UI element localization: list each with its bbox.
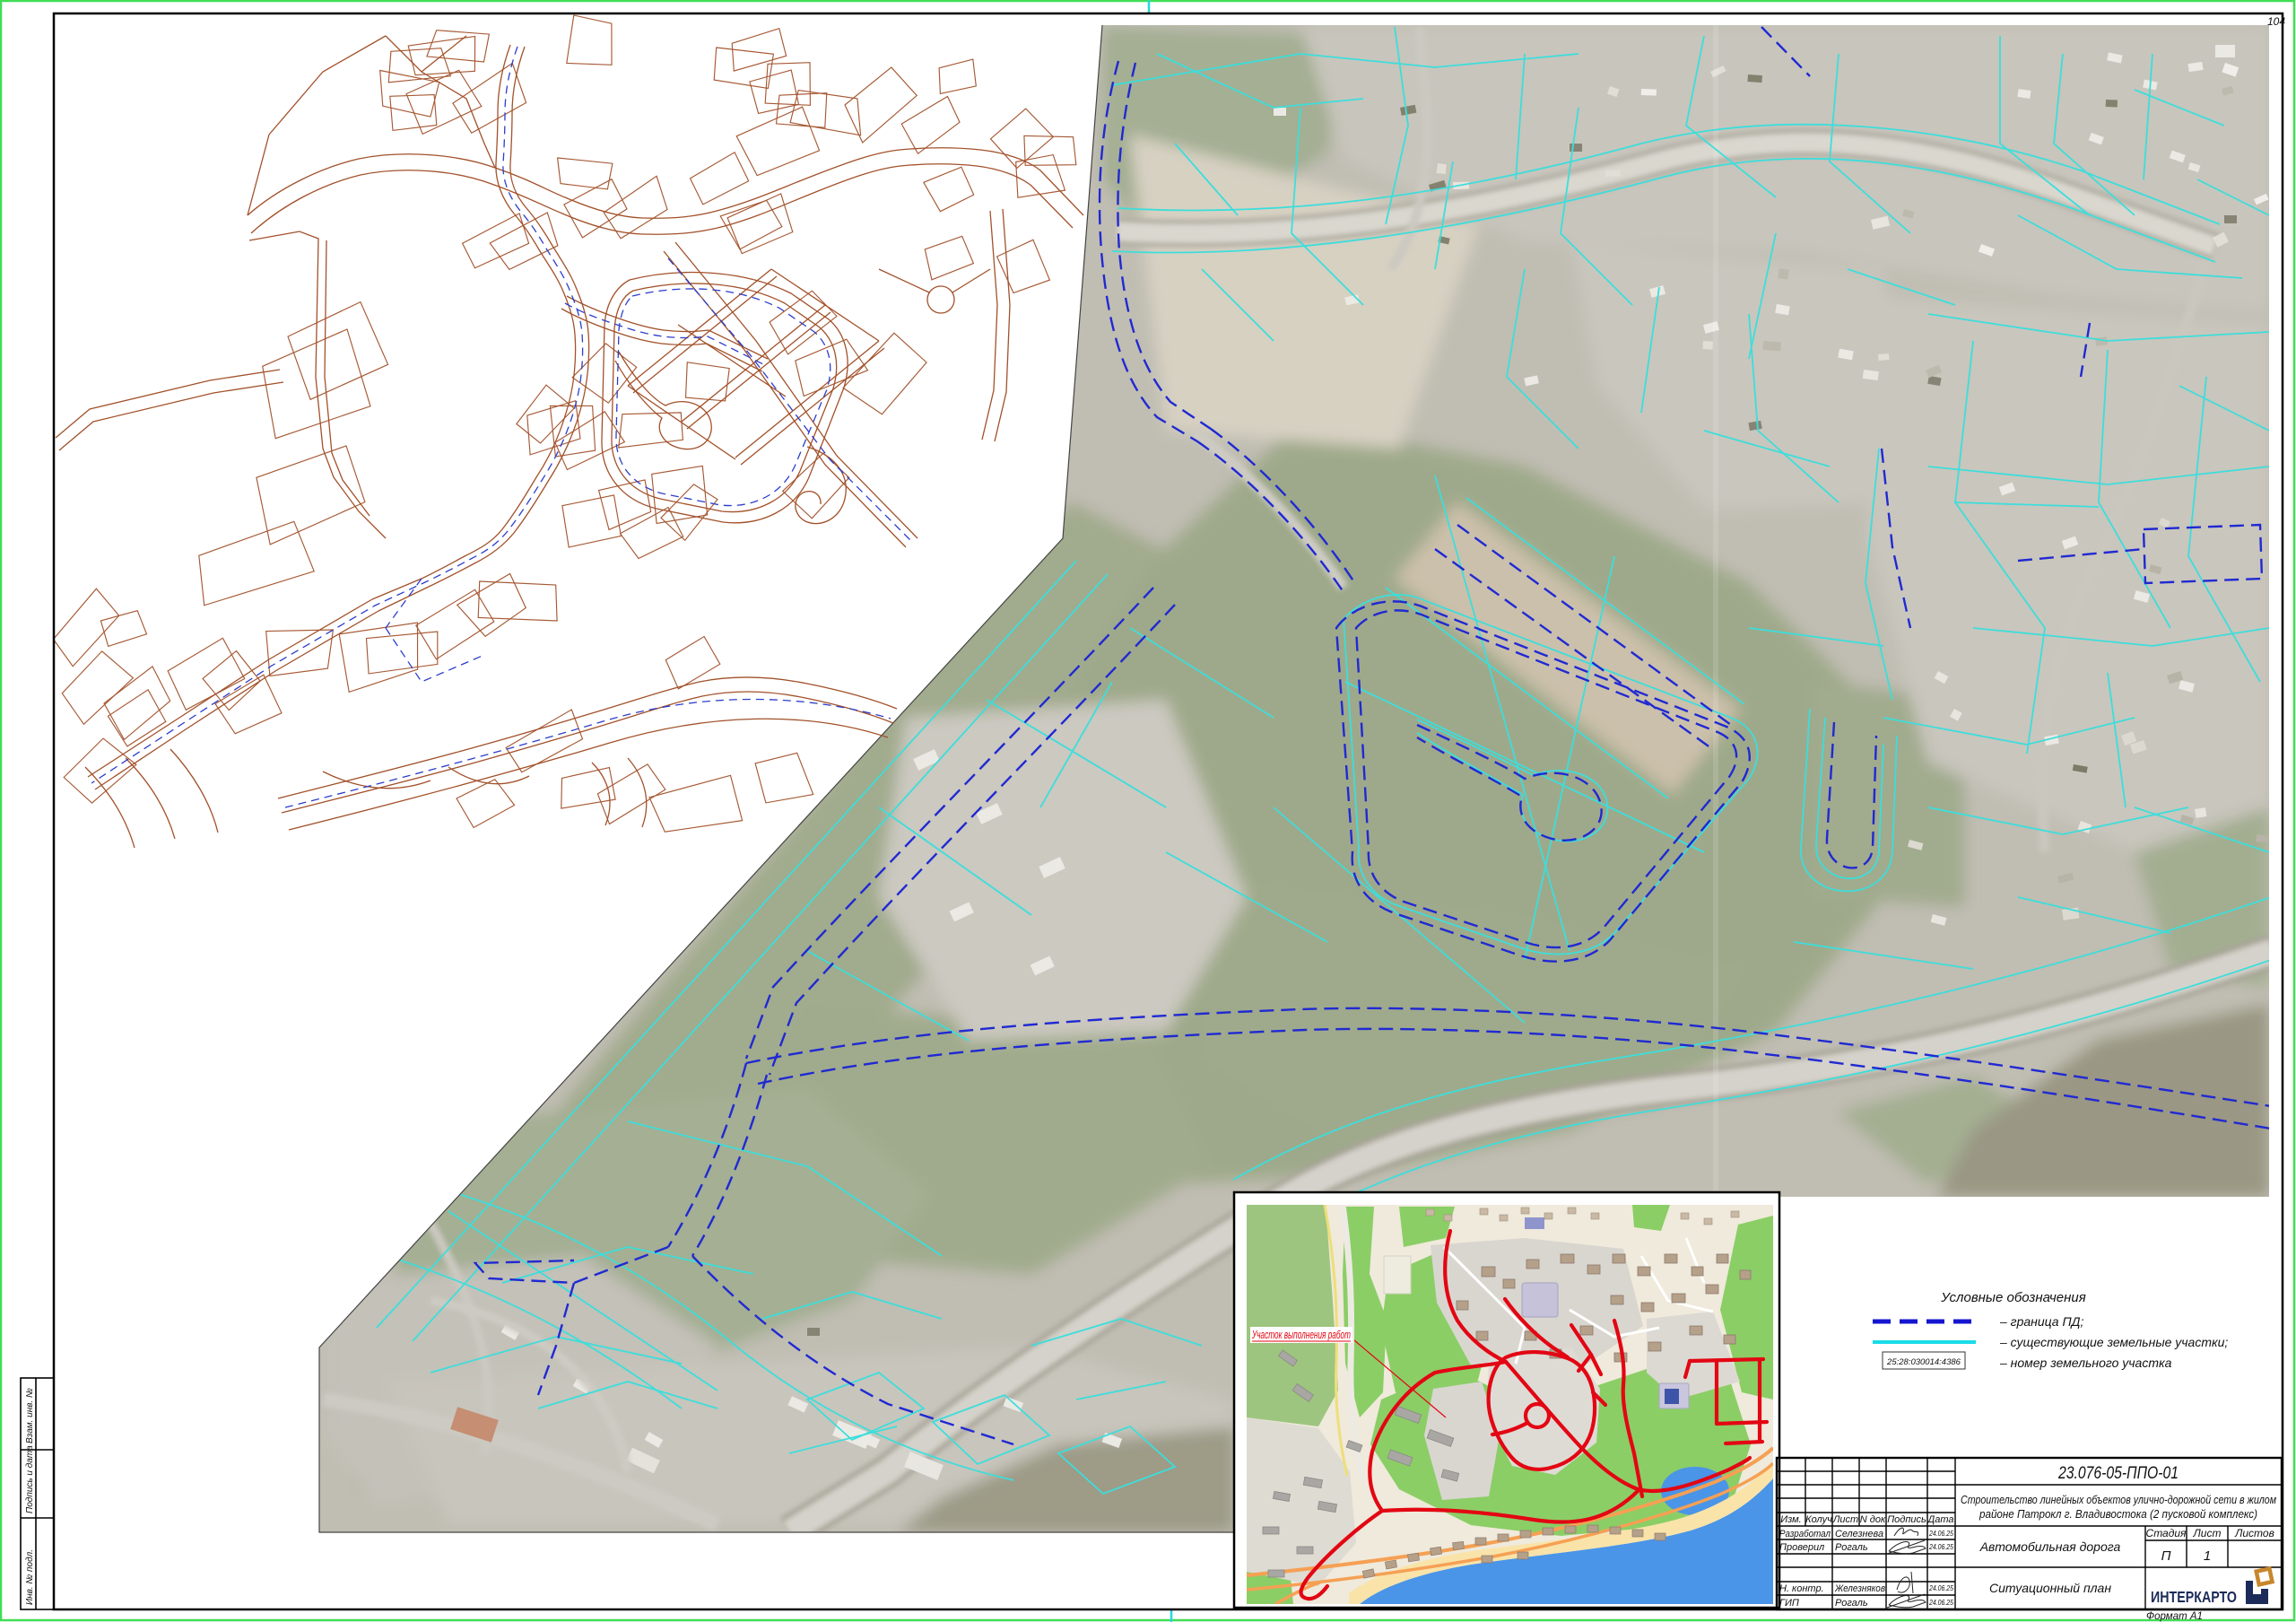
svg-text:ГИП: ГИП <box>1779 1598 1799 1609</box>
svg-text:П: П <box>2161 1548 2171 1564</box>
svg-text:Колуч: Колуч <box>1805 1514 1832 1525</box>
svg-text:24.06.25: 24.06.25 <box>1928 1583 1953 1592</box>
svg-text:1: 1 <box>2204 1548 2211 1564</box>
svg-text:Ситуационный план: Ситуационный план <box>1989 1581 2111 1595</box>
svg-text:Взам. инв. №: Взам. инв. № <box>25 1388 35 1443</box>
svg-text:Селезнева: Селезнева <box>1835 1529 1883 1539</box>
svg-text:23.076-05-ППО-01: 23.076-05-ППО-01 <box>2057 1464 2179 1483</box>
svg-text:25:28:030014:4386: 25:28:030014:4386 <box>1886 1357 1961 1367</box>
svg-text:Стадия: Стадия <box>2146 1527 2187 1539</box>
svg-text:– номер земельного участка: – номер земельного участка <box>1999 1356 2172 1370</box>
svg-text:Формат А1: Формат А1 <box>2146 1611 2203 1622</box>
svg-text:24.06.25: 24.06.25 <box>1928 1598 1953 1607</box>
svg-text:ИНТЕРКАРТО: ИНТЕРКАРТО <box>2151 1588 2237 1606</box>
svg-text:Строительство линейных объекто: Строительство линейных объектов улично-д… <box>1961 1494 2276 1506</box>
svg-text:районе Патрокл г. Владивостока: районе Патрокл г. Владивостока (2 пусков… <box>1979 1508 2257 1521</box>
svg-text:24.06.25: 24.06.25 <box>1928 1542 1953 1551</box>
svg-text:Дата: Дата <box>1926 1514 1953 1525</box>
svg-text:Н. контр.: Н. контр. <box>1779 1583 1824 1594</box>
svg-text:Рогаль: Рогаль <box>1835 1598 1868 1609</box>
svg-text:Подпись: Подпись <box>1887 1514 1926 1525</box>
svg-text:104: 104 <box>2267 15 2285 28</box>
svg-text:Железняков: Железняков <box>1834 1583 1885 1594</box>
svg-text:– существующие земельные участ: – существующие земельные участки; <box>1999 1335 2228 1349</box>
svg-text:Проверил: Проверил <box>1779 1542 1824 1553</box>
svg-text:Листов: Листов <box>2234 1527 2274 1539</box>
svg-text:24.06.25: 24.06.25 <box>1928 1529 1953 1538</box>
svg-text:N док: N док <box>1860 1514 1886 1525</box>
svg-text:Лист: Лист <box>1832 1514 1858 1525</box>
svg-text:Изм.: Изм. <box>1780 1514 1801 1525</box>
svg-text:Рогаль: Рогаль <box>1835 1542 1868 1553</box>
svg-text:– граница ПД;: – граница ПД; <box>1999 1314 2083 1329</box>
svg-text:Разработал: Разработал <box>1779 1529 1831 1539</box>
svg-text:Лист: Лист <box>2193 1527 2222 1539</box>
svg-text:Подпись и дата: Подпись и дата <box>25 1445 35 1513</box>
svg-text:Условные обозначения: Условные обозначения <box>1940 1290 2085 1305</box>
svg-text:Инв. № подл.: Инв. № подл. <box>25 1549 35 1605</box>
svg-text:Участок выполнения работ: Участок выполнения работ <box>1251 1329 1351 1341</box>
svg-text:Автомобильная дорога: Автомобильная дорога <box>1979 1539 2121 1554</box>
